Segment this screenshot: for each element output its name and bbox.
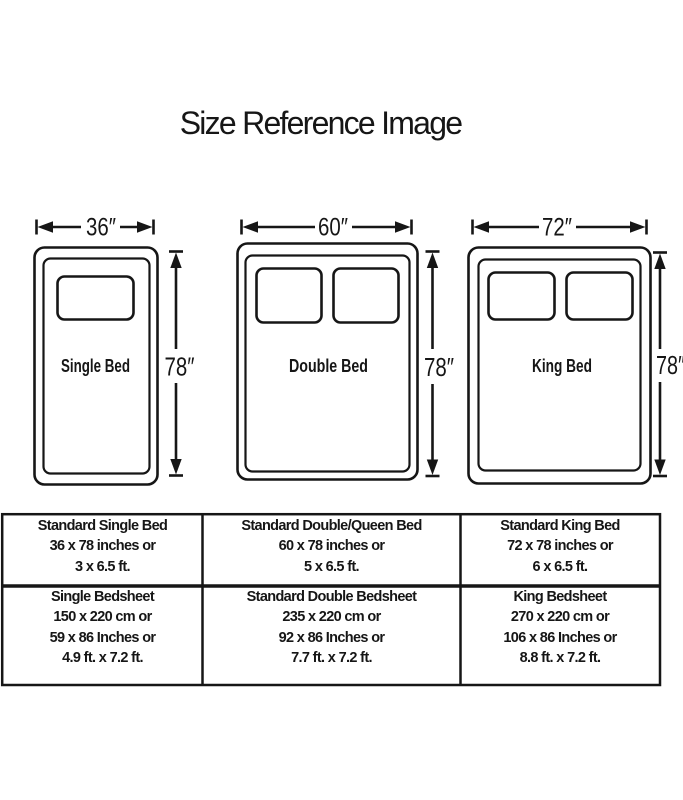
svg-text:King Bed: King Bed bbox=[532, 356, 592, 376]
svg-text:Double Bed: Double Bed bbox=[289, 356, 368, 376]
svg-text:36″: 36″ bbox=[86, 214, 116, 242]
svg-text:78″: 78″ bbox=[656, 350, 683, 380]
svg-text:78″: 78″ bbox=[165, 352, 195, 382]
svg-text:60″: 60″ bbox=[318, 214, 348, 242]
svg-text:78″: 78″ bbox=[424, 352, 454, 382]
svg-text:72″: 72″ bbox=[542, 214, 572, 242]
svg-text:Single Bed: Single Bed bbox=[61, 356, 130, 376]
